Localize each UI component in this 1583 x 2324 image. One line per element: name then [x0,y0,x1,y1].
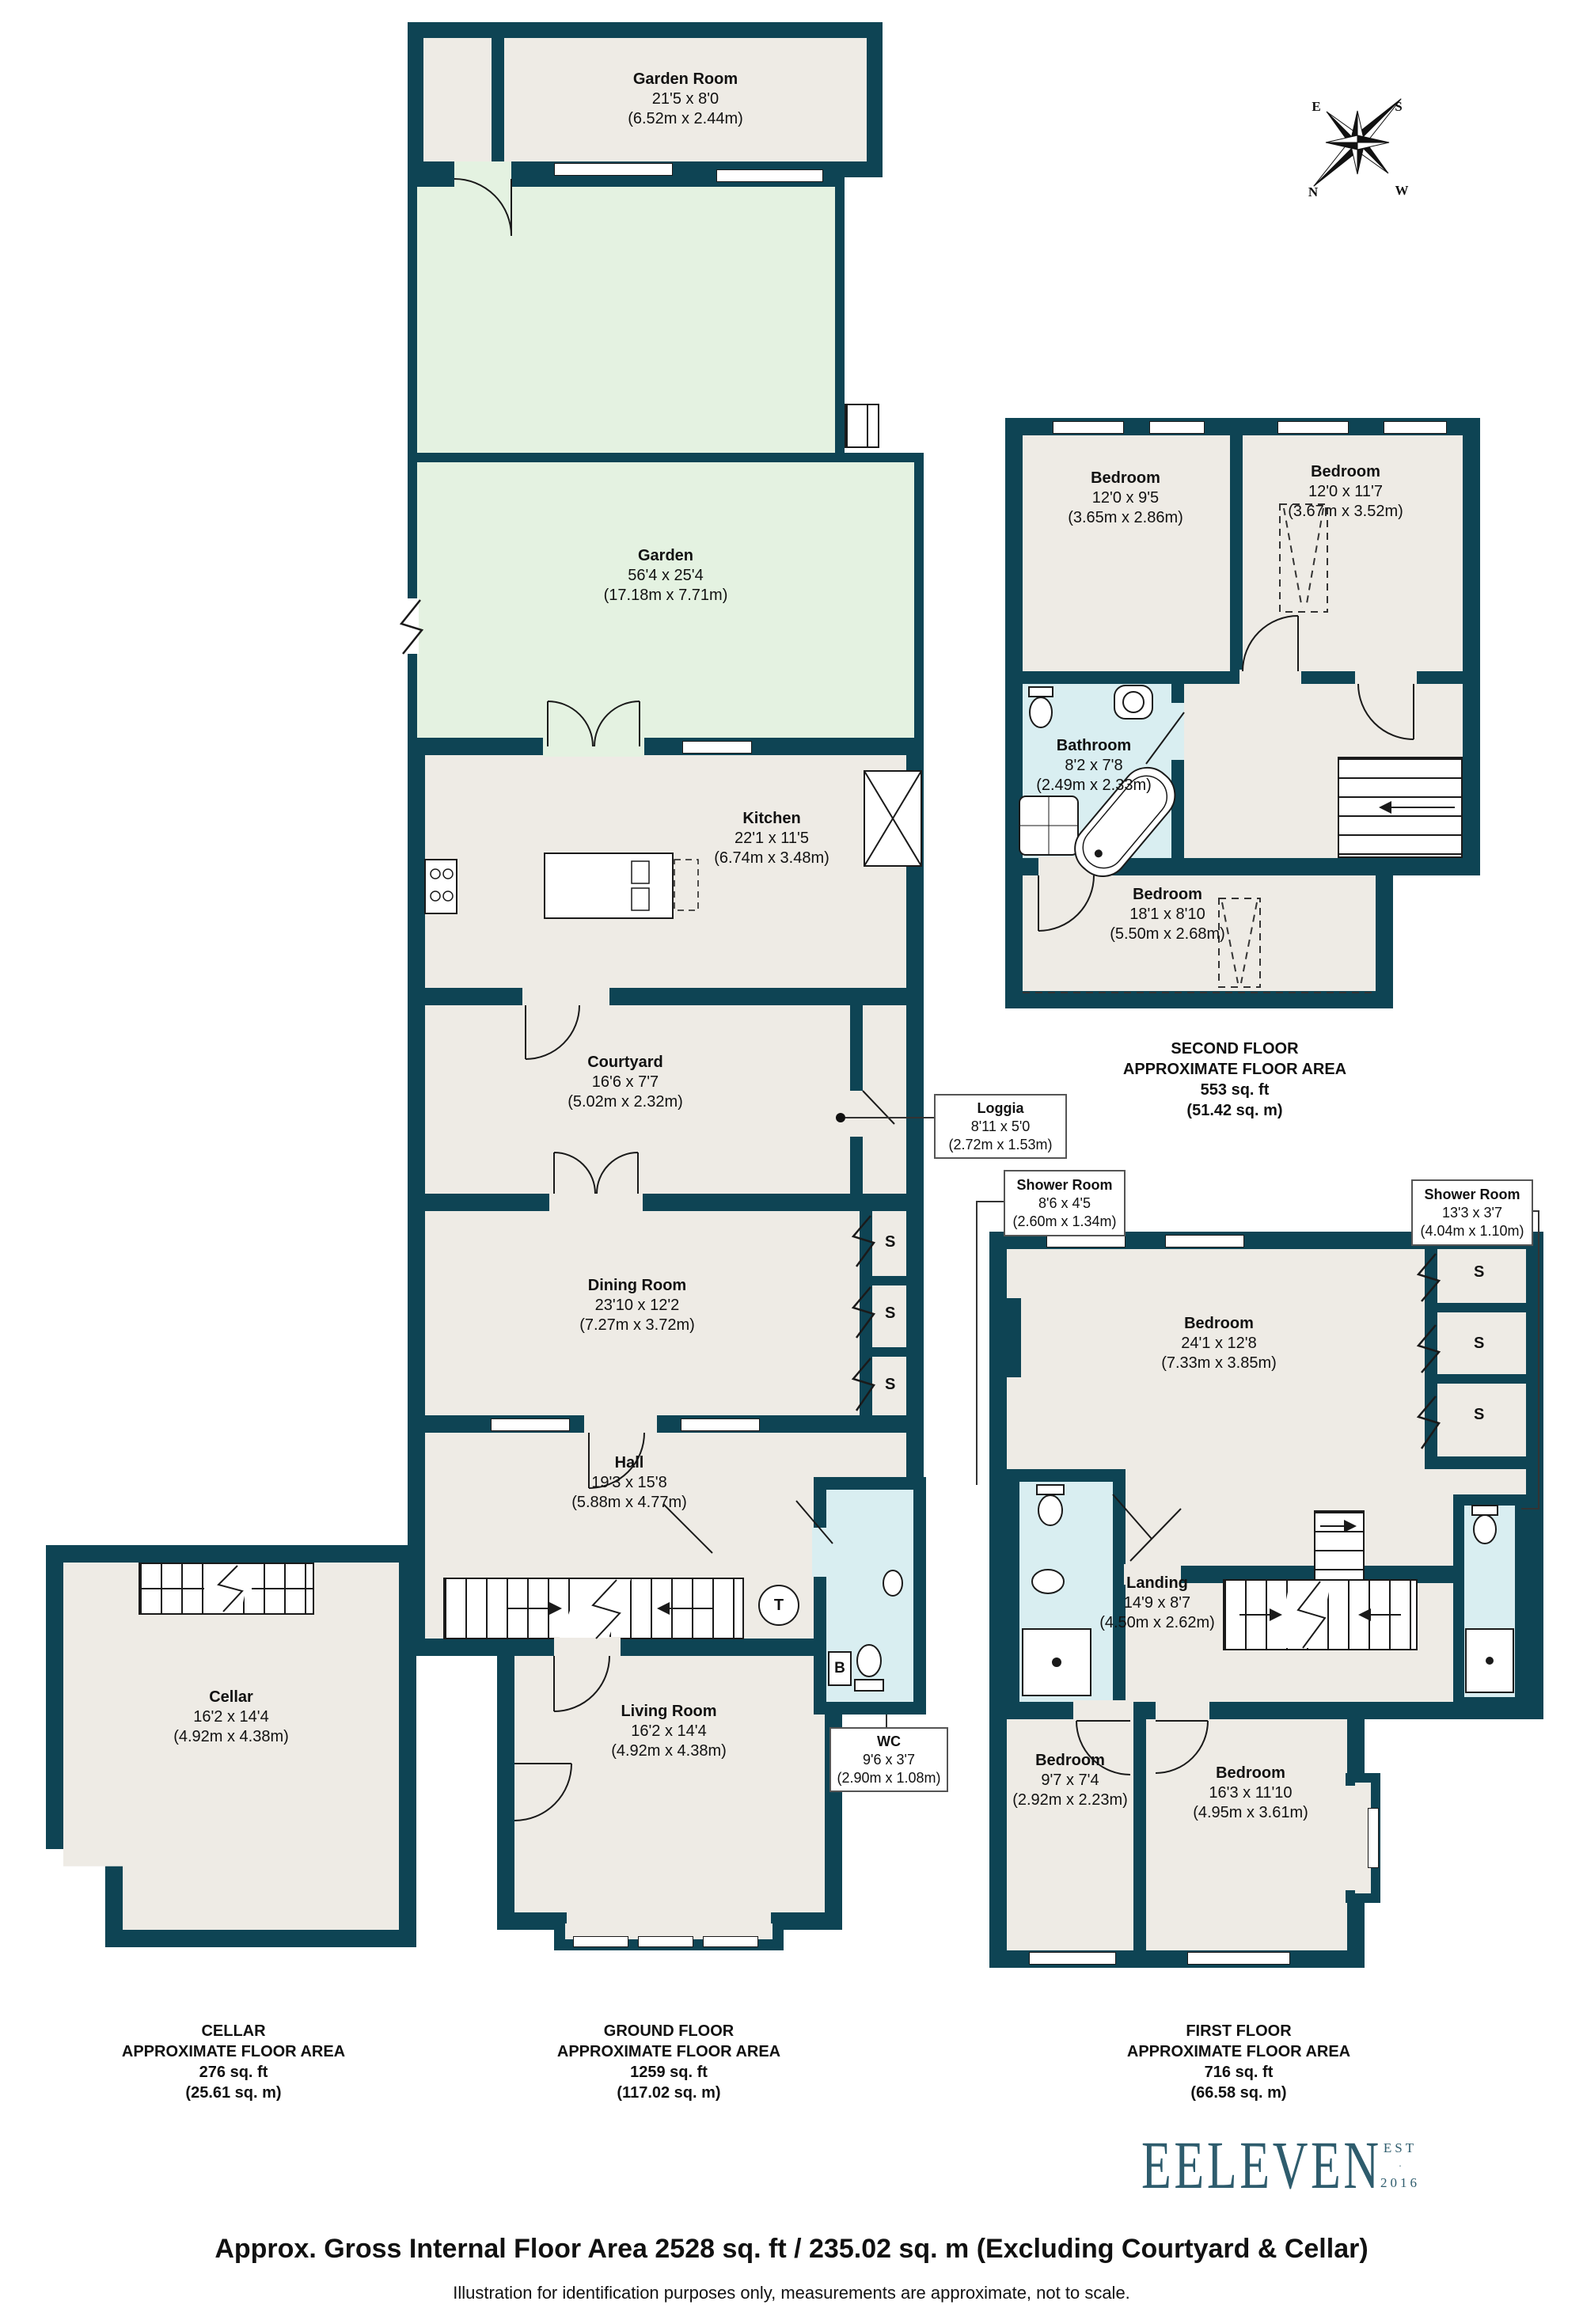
label-cellar: Cellar16'2 x 14'4(4.92m x 4.38m) [173,1688,289,1747]
room-name: Hall [571,1453,687,1473]
room-name: Bedroom [1110,885,1225,905]
room-dims-imperial: 16'3 x 11'10 [1193,1783,1308,1803]
room-dims-imperial: 18'1 x 8'10 [1110,905,1225,925]
sf-door-gap [1355,670,1417,685]
window [716,169,823,182]
room-shower-right [1453,1494,1526,1708]
tank-label: T [774,1597,784,1615]
floor-subtitle: APPROXIMATE FLOOR AREA [1127,2041,1350,2062]
callout-wc: WC9'6 x 3'7(2.90m x 1.08m) [829,1727,948,1792]
room-name: Dining Room [579,1276,695,1296]
wc-door-gap [812,1528,828,1577]
room-name: Loggia [978,1099,1024,1118]
hall-staircase [443,1578,744,1639]
window [554,163,673,176]
sf-staircase [1338,757,1463,858]
kitchen-courtyard-door-gap [522,986,609,1007]
room-dims-metric: (3.67m x 3.52m) [1288,502,1403,522]
room-name: Bedroom [1161,1314,1277,1334]
room-name: Kitchen [714,809,829,829]
room-dims-imperial: 14'9 x 8'7 [1099,1593,1215,1613]
storage-label: S [885,1376,895,1394]
room-name: Bedroom [1193,1764,1308,1783]
floor-sqft: 276 sq. ft [122,2062,345,2083]
dining-cupboard-divider [872,1347,907,1357]
room-name: Bedroom [1012,1751,1128,1771]
window [1368,1808,1379,1868]
label-kitchen: Kitchen22'1 x 11'5(6.74m x 3.48m) [714,809,829,868]
room-dims-metric: (2.90m x 1.08m) [837,1769,940,1787]
label-dining: Dining Room23'10 x 12'2(7.27m x 3.72m) [579,1276,695,1335]
brand-dot: · [1399,2160,1402,2172]
room-name: Garden [604,546,728,566]
room-dims-imperial: 16'2 x 14'4 [173,1707,289,1727]
sf-rear-door-gap [1038,856,1094,877]
sf-bedroom-divider-wall [1230,435,1243,684]
room-name: Courtyard [568,1053,683,1073]
storage-label: S [885,1233,895,1251]
room-dims-metric: (4.92m x 4.38m) [173,1727,289,1747]
ff-bed-door-gap [1073,1700,1133,1721]
room-name: Bathroom [1036,736,1152,756]
room-name: Shower Room [1424,1186,1520,1204]
floor-sqm: (51.42 sq. m) [1123,1100,1346,1121]
window [1149,421,1205,434]
ff-bedroom-divider [1133,1719,1146,1968]
label-bedroom1-small: Bedroom9'7 x 7'4(2.92m x 2.23m) [1012,1751,1128,1810]
room-dims-metric: (4.50m x 2.62m) [1099,1613,1215,1633]
room-name: Bedroom [1068,469,1183,488]
label-bedroom2-right: Bedroom12'0 x 11'7(3.67m x 3.52m) [1288,462,1403,522]
window [703,1936,758,1947]
room-dims-imperial: 16'6 x 7'7 [568,1073,683,1092]
room-dims-imperial: 8'6 x 4'5 [1038,1194,1091,1213]
floor-area-first: FIRST FLOORAPPROXIMATE FLOOR AREA716 sq.… [1127,2021,1350,2103]
callout-shower-right: Shower Room13'3 x 3'7(4.04m x 1.10m) [1411,1179,1533,1246]
brand-est-block: EST · 2016 [1380,2140,1420,2191]
room-name: Shower Room [1016,1176,1112,1194]
room-dims-imperial: 56'4 x 25'4 [604,566,728,586]
floor-area-second: SECOND FLOORAPPROXIMATE FLOOR AREA553 sq… [1123,1039,1346,1121]
room-dims-imperial: 22'1 x 11'5 [714,829,829,849]
floor-subtitle: APPROXIMATE FLOOR AREA [1123,1059,1346,1080]
room-dims-imperial: 12'0 x 11'7 [1288,482,1403,502]
ff-cupboard-divider [1437,1374,1526,1384]
room-dims-metric: (5.50m x 2.68m) [1110,925,1225,944]
floor-title: FIRST FLOOR [1127,2021,1350,2041]
storage-label: S [885,1304,895,1323]
label-landing: Landing14'9 x 8'7(4.50m x 2.62m) [1099,1574,1215,1633]
floor-sqft: 716 sq. ft [1127,2062,1350,2083]
window [1384,421,1447,434]
garden-side-steps [845,404,879,448]
compass-rose: E S N W [1286,71,1429,214]
compass-east-label: E [1312,99,1320,114]
floor-subtitle: APPROXIMATE FLOOR AREA [557,2041,780,2062]
window [1165,1235,1244,1247]
bathroom-door-gap [1171,703,1184,760]
ff-chimney [989,1298,1021,1377]
window [1053,421,1124,434]
boiler-label: B [834,1660,845,1677]
garden-gate-gap [406,598,419,654]
window [1187,1952,1290,1965]
window [573,1936,628,1947]
ff-cupboard-wall [1425,1232,1437,1469]
garden-upper [408,177,845,462]
room-dims-metric: (5.02m x 2.32m) [568,1092,683,1112]
ff-bay-opening [1344,1786,1366,1890]
courtyard-dining-doors-gap [549,1192,643,1213]
tank-symbol: T [758,1585,799,1626]
window [1029,1952,1116,1965]
window [1046,1235,1126,1247]
label-bedroom1-rear: Bedroom16'3 x 11'10(4.95m x 3.61m) [1193,1764,1308,1823]
room-name: WC [877,1733,901,1751]
room-name: Living Room [611,1702,727,1722]
room-dims-imperial: 24'1 x 12'8 [1161,1334,1277,1354]
room-kitchen [408,738,924,1005]
storage-label: S [1474,1335,1484,1353]
label-garden: Garden56'4 x 25'4(17.18m x 7.71m) [604,546,728,606]
room-dims-imperial: 9'7 x 7'4 [1012,1771,1128,1790]
compass-south-label: S [1395,99,1402,114]
room-dims-metric: (3.65m x 2.86m) [1068,508,1183,528]
room-dims-imperial: 19'3 x 15'8 [571,1473,687,1493]
room-dims-metric: (2.72m x 1.53m) [948,1136,1052,1154]
floor-area-cellar: CELLARAPPROXIMATE FLOOR AREA276 sq. ft(2… [122,2021,345,2103]
room-dims-metric: (4.95m x 3.61m) [1193,1803,1308,1823]
room-name: Landing [1099,1574,1215,1593]
floor-title: GROUND FLOOR [557,2021,780,2041]
dining-cupboard-wall [860,1211,872,1433]
living-bay-opening [567,1912,771,1930]
dining-hall-door-gap [584,1414,657,1434]
room-dims-metric: (2.92m x 2.23m) [1012,1790,1128,1810]
floor-sqm: (25.61 sq. m) [122,2083,345,2103]
floorplan-page: Garden Room21'5 x 8'0(6.52m x 2.44m) Gar… [0,0,1583,2324]
garden-room-vestibule-wall [492,38,504,161]
ff-cupboard-divider [1437,1303,1526,1312]
window [1277,421,1349,434]
room-dims-metric: (4.92m x 4.38m) [611,1741,727,1761]
room-dims-imperial: 16'2 x 14'4 [611,1722,727,1741]
compass-west-label: W [1395,183,1409,198]
kitchen-garden-doors-gap [543,736,644,757]
label-hall: Hall19'3 x 15'8(5.88m x 4.77m) [571,1453,687,1513]
room-dims-imperial: 23'10 x 12'2 [579,1296,695,1316]
sf-door-gap [1239,670,1301,685]
room-dims-imperial: 9'6 x 3'7 [863,1751,915,1769]
loggia-door-gap [848,1091,864,1137]
room-dims-imperial: 8'2 x 7'8 [1036,756,1152,776]
brand-est: EST [1384,2140,1417,2156]
label-courtyard: Courtyard16'6 x 7'7(5.02m x 2.32m) [568,1053,683,1112]
boiler-symbol: B [828,1651,852,1686]
hall-living-door-gap [554,1637,621,1658]
room-dims-metric: (4.04m x 1.10m) [1420,1222,1524,1240]
room-dims-metric: (6.74m x 3.48m) [714,849,829,868]
room-dims-imperial: 13'3 x 3'7 [1442,1204,1502,1222]
floor-sqm: (66.58 sq. m) [1127,2083,1350,2103]
dining-cupboard-divider [872,1276,907,1285]
room-dims-metric: (2.49m x 2.33m) [1036,776,1152,796]
storage-label: S [1474,1406,1484,1424]
room-name: Bedroom [1288,462,1403,482]
ff-staircase [1223,1579,1418,1650]
room-living [497,1639,842,1930]
label-living: Living Room16'2 x 14'4(4.92m x 4.38m) [611,1702,727,1761]
gross-area-text: Approx. Gross Internal Floor Area 2528 s… [0,2234,1583,2265]
floor-sqft: 1259 sq. ft [557,2062,780,2083]
brand-year: 2016 [1380,2175,1420,2191]
window [638,1936,693,1947]
brand-name: EELEVEN [1141,2137,1382,2193]
room-dims-metric: (7.33m x 3.85m) [1161,1354,1277,1373]
window [491,1418,570,1431]
disclaimer-text: Illustration for identification purposes… [0,2283,1583,2303]
room-name: Cellar [173,1688,289,1707]
room-dims-imperial: 8'11 x 5'0 [971,1118,1031,1136]
floor-title: CELLAR [122,2021,345,2041]
window [682,741,752,754]
floor-sqm: (117.02 sq. m) [557,2083,780,2103]
room-dims-metric: (7.27m x 3.72m) [579,1316,695,1335]
callout-loggia: Loggia8'11 x 5'0(2.72m x 1.53m) [934,1094,1067,1159]
brand-logo: EELEVEN [1141,2137,1475,2193]
label-bedroom2-rear: Bedroom18'1 x 8'10(5.50m x 2.68m) [1110,885,1225,944]
ff-cupboard-bottom-wall [1425,1456,1526,1469]
room-dims-metric: (5.88m x 4.77m) [571,1493,687,1513]
label-bathroom: Bathroom8'2 x 7'8(2.49m x 2.33m) [1036,736,1152,796]
room-name: Garden Room [628,70,743,89]
floor-title: SECOND FLOOR [1123,1039,1346,1059]
floor-area-ground: GROUND FLOORAPPROXIMATE FLOOR AREA1259 s… [557,2021,780,2103]
callout-shower-left: Shower Room8'6 x 4'5(2.60m x 1.34m) [1004,1170,1126,1236]
first-floor-bottom-block [989,1702,1365,1968]
label-bedroom2-left: Bedroom12'0 x 9'5(3.65m x 2.86m) [1068,469,1183,528]
label-garden-room: Garden Room21'5 x 8'0(6.52m x 2.44m) [628,70,743,129]
cellar-staircase [139,1563,314,1615]
room-dims-imperial: 21'5 x 8'0 [628,89,743,109]
compass-north-label: N [1308,184,1319,199]
room-dims-imperial: 12'0 x 9'5 [1068,488,1183,508]
floor-sqft: 553 sq. ft [1123,1080,1346,1100]
label-bedroom1-main: Bedroom24'1 x 12'8(7.33m x 3.85m) [1161,1314,1277,1373]
garden-room-door-gap [454,161,511,188]
room-dims-metric: (2.60m x 1.34m) [1012,1213,1116,1231]
window [681,1418,760,1431]
storage-label: S [1474,1263,1484,1282]
room-dims-metric: (6.52m x 2.44m) [628,109,743,129]
ff-bed-door-gap [1156,1700,1209,1721]
floor-subtitle: APPROXIMATE FLOOR AREA [122,2041,345,2062]
ff-stair-upper-run [1314,1510,1365,1582]
room-dims-metric: (17.18m x 7.71m) [604,586,728,606]
